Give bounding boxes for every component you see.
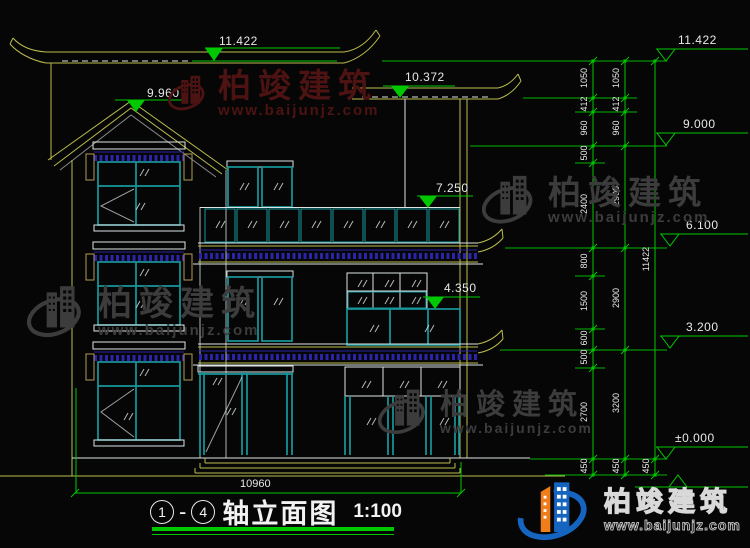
tower-window-unit-3 (86, 342, 192, 446)
elevation-label-floor3: 7.250 (436, 181, 469, 195)
tower-window-unit-1 (86, 142, 192, 231)
watermark-url: www.baijunjz.com (218, 103, 379, 119)
watermark-brand: 柏竣建筑 (548, 176, 709, 211)
watermark-url: www.baijunjz.com (98, 323, 262, 339)
watermark-url: www.baijunjz.com (440, 421, 593, 436)
dim-col1-500b: 500 (579, 335, 589, 379)
main-roof (10, 30, 380, 63)
watermark-brand: 柏竣建筑 (218, 69, 379, 104)
drawing-title: 1 - 4 轴立面图 1:100 (150, 492, 402, 531)
dim-col2-3200: 3200 (611, 381, 621, 425)
axis-number-start: 1 (158, 504, 166, 520)
watermark-logo-icon (482, 168, 540, 234)
elevation-drawing-canvas: 11.422 9.960 10.372 7.250 4.350 11.422 9… (0, 0, 750, 548)
company-logo-icon (514, 476, 598, 546)
watermark-logo-icon (378, 382, 432, 444)
watermark-brand: 柏竣建筑 (98, 287, 262, 323)
scale-elevation-markers (635, 49, 748, 487)
dim-col2-2900b: 2900 (611, 276, 621, 320)
title-underline-thick (152, 527, 394, 531)
scale-label-11422: 11.422 (678, 33, 717, 47)
elevation-label-ridge: 11.422 (219, 34, 258, 48)
watermark-brand: 柏竣建筑 (440, 390, 593, 420)
elevation-label-roof2: 10.372 (405, 70, 445, 84)
watermark-right: 柏竣建筑 www.baijunjz.com (482, 168, 709, 234)
watermark-top: 柏竣建筑 www.baijunjz.com (168, 66, 379, 122)
dim-col1-800: 800 (579, 239, 589, 283)
scale-label-9000: 9.000 (683, 117, 716, 131)
drawing-scale-label: 1:100 (353, 501, 402, 523)
axis-bubble-start: 1 (150, 500, 174, 524)
dim-col2-960: 960 (611, 106, 621, 150)
dim-col3-11422: 11422 (641, 237, 651, 281)
scale-label-zero: ±0.000 (675, 431, 715, 445)
scale-label-3200: 3.200 (686, 320, 719, 334)
third-floor-windows (200, 161, 460, 242)
watermark-left: 柏竣建筑 www.baijunjz.com (26, 280, 262, 346)
drawing-title-text: 轴立面图 (222, 492, 338, 531)
watermark-logo-icon (168, 66, 210, 122)
company-logo-brand: 柏竣建筑 (604, 488, 741, 518)
axis-number-end: 4 (199, 504, 207, 520)
watermark-logo-icon (26, 280, 90, 346)
elevation-label-floor2: 4.350 (444, 281, 477, 295)
title-underline-thin (152, 534, 394, 535)
entry-steps (195, 458, 460, 473)
axis-bubble-end: 4 (191, 500, 215, 524)
axis-range-dash: - (179, 499, 186, 525)
watermark-bottom: 柏竣建筑 www.baijunjz.com (378, 382, 593, 444)
company-logo: 柏竣建筑 www.baijunjz.com (514, 476, 741, 546)
width-dimension-label: 10960 (240, 478, 271, 490)
watermark-url: www.baijunjz.com (548, 210, 709, 226)
company-logo-url: www.baijunjz.com (604, 518, 741, 533)
eave-band-upper (193, 229, 503, 264)
